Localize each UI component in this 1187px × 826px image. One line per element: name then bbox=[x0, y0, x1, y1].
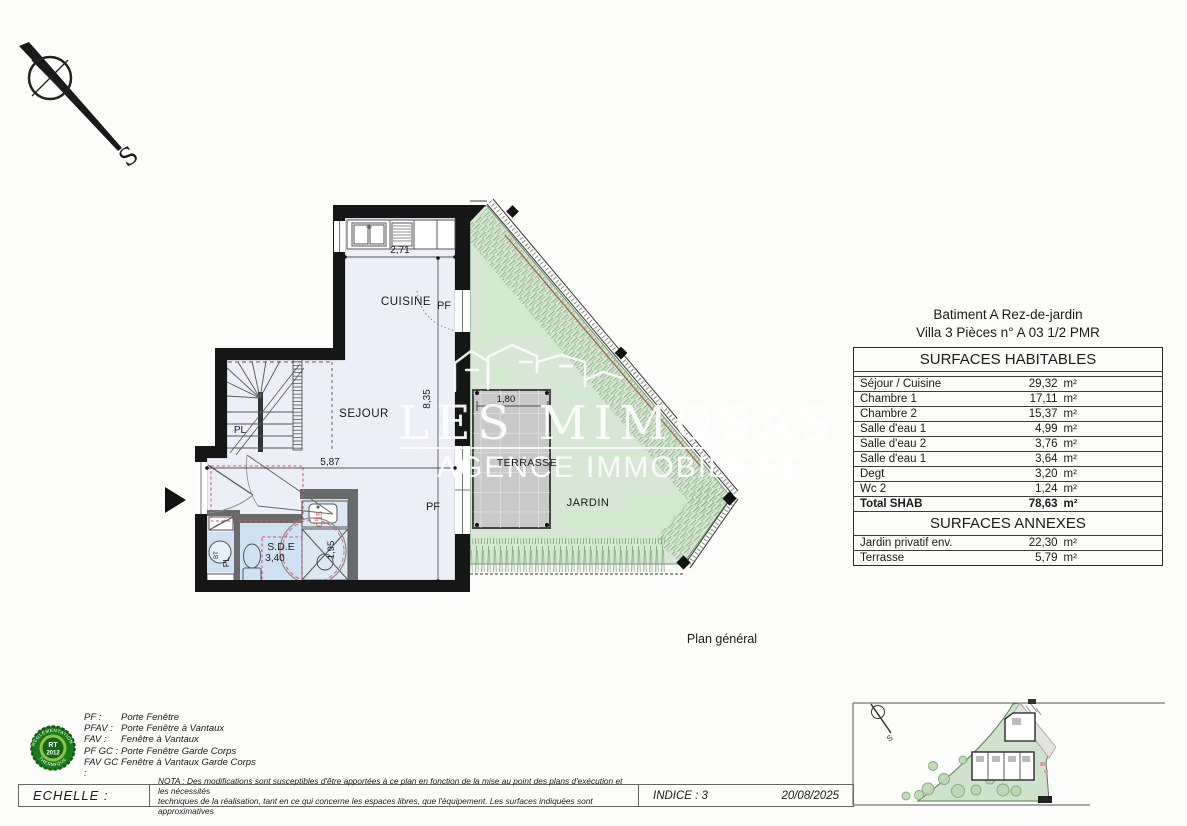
dim-offset: 0,15 bbox=[315, 511, 324, 527]
scale-cell: ECHELLE : bbox=[19, 785, 150, 806]
legend-row: PF GC : Porte Fenêtre Garde Corps bbox=[84, 746, 256, 757]
row-unit: m² bbox=[1060, 467, 1163, 482]
legend-label: Porte Fenêtre bbox=[121, 712, 179, 723]
legend-label: Porte Fenêtre Garde Corps bbox=[121, 746, 236, 757]
table-row: Chambre 1 17,11 m² bbox=[854, 392, 1163, 407]
row-label: Salle d'eau 2 bbox=[854, 437, 957, 452]
closet-label-stair: PL bbox=[234, 425, 247, 436]
row-value: 15,37 bbox=[957, 407, 1060, 422]
row-unit: m² bbox=[1060, 536, 1163, 551]
dim-sde-area: 3,40 bbox=[265, 553, 285, 564]
row-unit: m² bbox=[1060, 422, 1163, 437]
row-label: Salle d'eau 1 bbox=[854, 422, 957, 437]
table-row: Salle d'eau 1 3,64 m² bbox=[854, 452, 1163, 467]
nota-cell: NOTA : Des modifications sont susceptibl… bbox=[150, 785, 639, 806]
door-label-pf-sejour: PF bbox=[426, 501, 440, 513]
table-row: Jardin privatif env. 22,30 m² bbox=[854, 536, 1163, 551]
row-unit: m² bbox=[1060, 452, 1163, 467]
row-value: 5,79 bbox=[957, 551, 1060, 566]
unit-title: Villa 3 Pièces n° A 03 1/2 PMR bbox=[853, 324, 1163, 342]
label-bt: BT bbox=[214, 551, 220, 559]
row-label: Jardin privatif env. bbox=[854, 536, 957, 551]
nota-line2: techniques de la réalisation, tant en ce… bbox=[158, 796, 630, 816]
building-title: Batiment A Rez-de-jardin bbox=[853, 306, 1163, 324]
legend-abbr: PF GC : bbox=[84, 746, 121, 757]
total-unit: m² bbox=[1060, 497, 1163, 512]
table-row: Salle d'eau 1 4,99 m² bbox=[854, 422, 1163, 437]
date-label: 20/08/2025 bbox=[781, 790, 839, 802]
legend-abbr: PF : bbox=[84, 712, 121, 723]
row-unit: m² bbox=[1060, 392, 1163, 407]
dim-terrasse-width: 1,80 bbox=[497, 394, 516, 405]
table-row: Wc 2 1,24 m² bbox=[854, 482, 1163, 497]
row-unit: m² bbox=[1060, 377, 1163, 392]
row-value: 17,11 bbox=[957, 392, 1060, 407]
table-row: Terrasse 5,79 m² bbox=[854, 551, 1163, 566]
revision-cell: INDICE : 3 20/08/2025 bbox=[639, 785, 853, 806]
row-label: Chambre 1 bbox=[854, 392, 957, 407]
total-row: Total SHAB 78,63 m² bbox=[854, 497, 1163, 512]
row-label: Chambre 2 bbox=[854, 407, 957, 422]
legend-label: Porte Fenêtre à Vantaux bbox=[121, 723, 224, 734]
legend-abbr: PFAV : bbox=[84, 723, 121, 734]
dim-cuisine-width: 2,71 bbox=[390, 245, 410, 256]
table-row: Salle d'eau 2 3,76 m² bbox=[854, 437, 1163, 452]
row-value: 3,20 bbox=[957, 467, 1060, 482]
room-label-sejour: SEJOUR bbox=[339, 408, 389, 420]
row-label: Terrasse bbox=[854, 551, 957, 566]
dim-sejour-width: 5,87 bbox=[320, 457, 340, 468]
row-value: 4,99 bbox=[957, 422, 1060, 437]
room-label-terrasse: TERRASSE bbox=[497, 457, 558, 469]
row-value: 29,32 bbox=[957, 377, 1060, 392]
legend-abbr: FAV GC : bbox=[84, 757, 121, 779]
legend-row: FAV : Fenêtre à Vantaux bbox=[84, 734, 256, 745]
row-label: Wc 2 bbox=[854, 482, 957, 497]
surfaces-table-block: Batiment A Rez-de-jardin Villa 3 Pièces … bbox=[853, 306, 1163, 566]
scale-label: ECHELLE : bbox=[33, 788, 108, 803]
header-surfaces-habitables: SURFACES HABITABLES bbox=[854, 348, 1163, 372]
rt-badge-year: 2012 bbox=[46, 751, 60, 757]
plan-caption: Plan général bbox=[652, 632, 792, 646]
plan-title: Batiment A Rez-de-jardin Villa 3 Pièces … bbox=[853, 306, 1163, 342]
dim-sde-width: 1,95 bbox=[326, 541, 337, 560]
room-label-jardin: JARDIN bbox=[567, 497, 610, 509]
row-value: 3,64 bbox=[957, 452, 1060, 467]
row-unit: m² bbox=[1060, 482, 1163, 497]
row-label: Séjour / Cuisine bbox=[854, 377, 957, 392]
row-unit: m² bbox=[1060, 437, 1163, 452]
rt2012-badge-icon: RÉGLEMENTATION THERMIQUE RT 2012 bbox=[30, 725, 76, 771]
header-surfaces-annexes: SURFACES ANNEXES bbox=[854, 512, 1163, 536]
legend-label: Fenêtre à Vantaux bbox=[121, 734, 199, 745]
room-label-cuisine: CUISINE bbox=[381, 296, 431, 308]
row-label: Degt bbox=[854, 467, 957, 482]
row-value: 22,30 bbox=[957, 536, 1060, 551]
row-unit: m² bbox=[1060, 551, 1163, 566]
table-row: Chambre 2 15,37 m² bbox=[854, 407, 1163, 422]
legend-row: PF : Porte Fenêtre bbox=[84, 712, 256, 723]
dim-sejour-depth: 8,35 bbox=[422, 389, 433, 409]
table-row: Degt 3,20 m² bbox=[854, 467, 1163, 482]
title-block-bar: ECHELLE : NOTA : Des modifications sont … bbox=[18, 784, 854, 807]
indice-label: INDICE : 3 bbox=[653, 790, 708, 802]
total-label: Total SHAB bbox=[854, 497, 957, 512]
closet-label-bt: PL bbox=[221, 557, 231, 568]
room-label-sde: S.D.E bbox=[267, 541, 294, 553]
row-value: 1,24 bbox=[957, 482, 1060, 497]
floor-plan-page: S bbox=[0, 0, 1187, 826]
legend-abbr: FAV : bbox=[84, 734, 121, 745]
row-unit: m² bbox=[1060, 407, 1163, 422]
total-value: 78,63 bbox=[957, 497, 1060, 512]
rt-badge-rt: RT bbox=[48, 742, 58, 749]
nota-line1: NOTA : Des modifications sont susceptibl… bbox=[158, 776, 630, 796]
table-row: Séjour / Cuisine 29,32 m² bbox=[854, 377, 1163, 392]
surfaces-table: SURFACES HABITABLES Séjour / Cuisine 29,… bbox=[853, 347, 1163, 566]
abbreviations-legend: PF : Porte Fenêtre PFAV : Porte Fenêtre … bbox=[84, 712, 256, 779]
row-label: Salle d'eau 1 bbox=[854, 452, 957, 467]
door-label-pf-cuisine: PF bbox=[437, 300, 451, 312]
legend-row: PFAV : Porte Fenêtre à Vantaux bbox=[84, 723, 256, 734]
row-value: 3,76 bbox=[957, 437, 1060, 452]
